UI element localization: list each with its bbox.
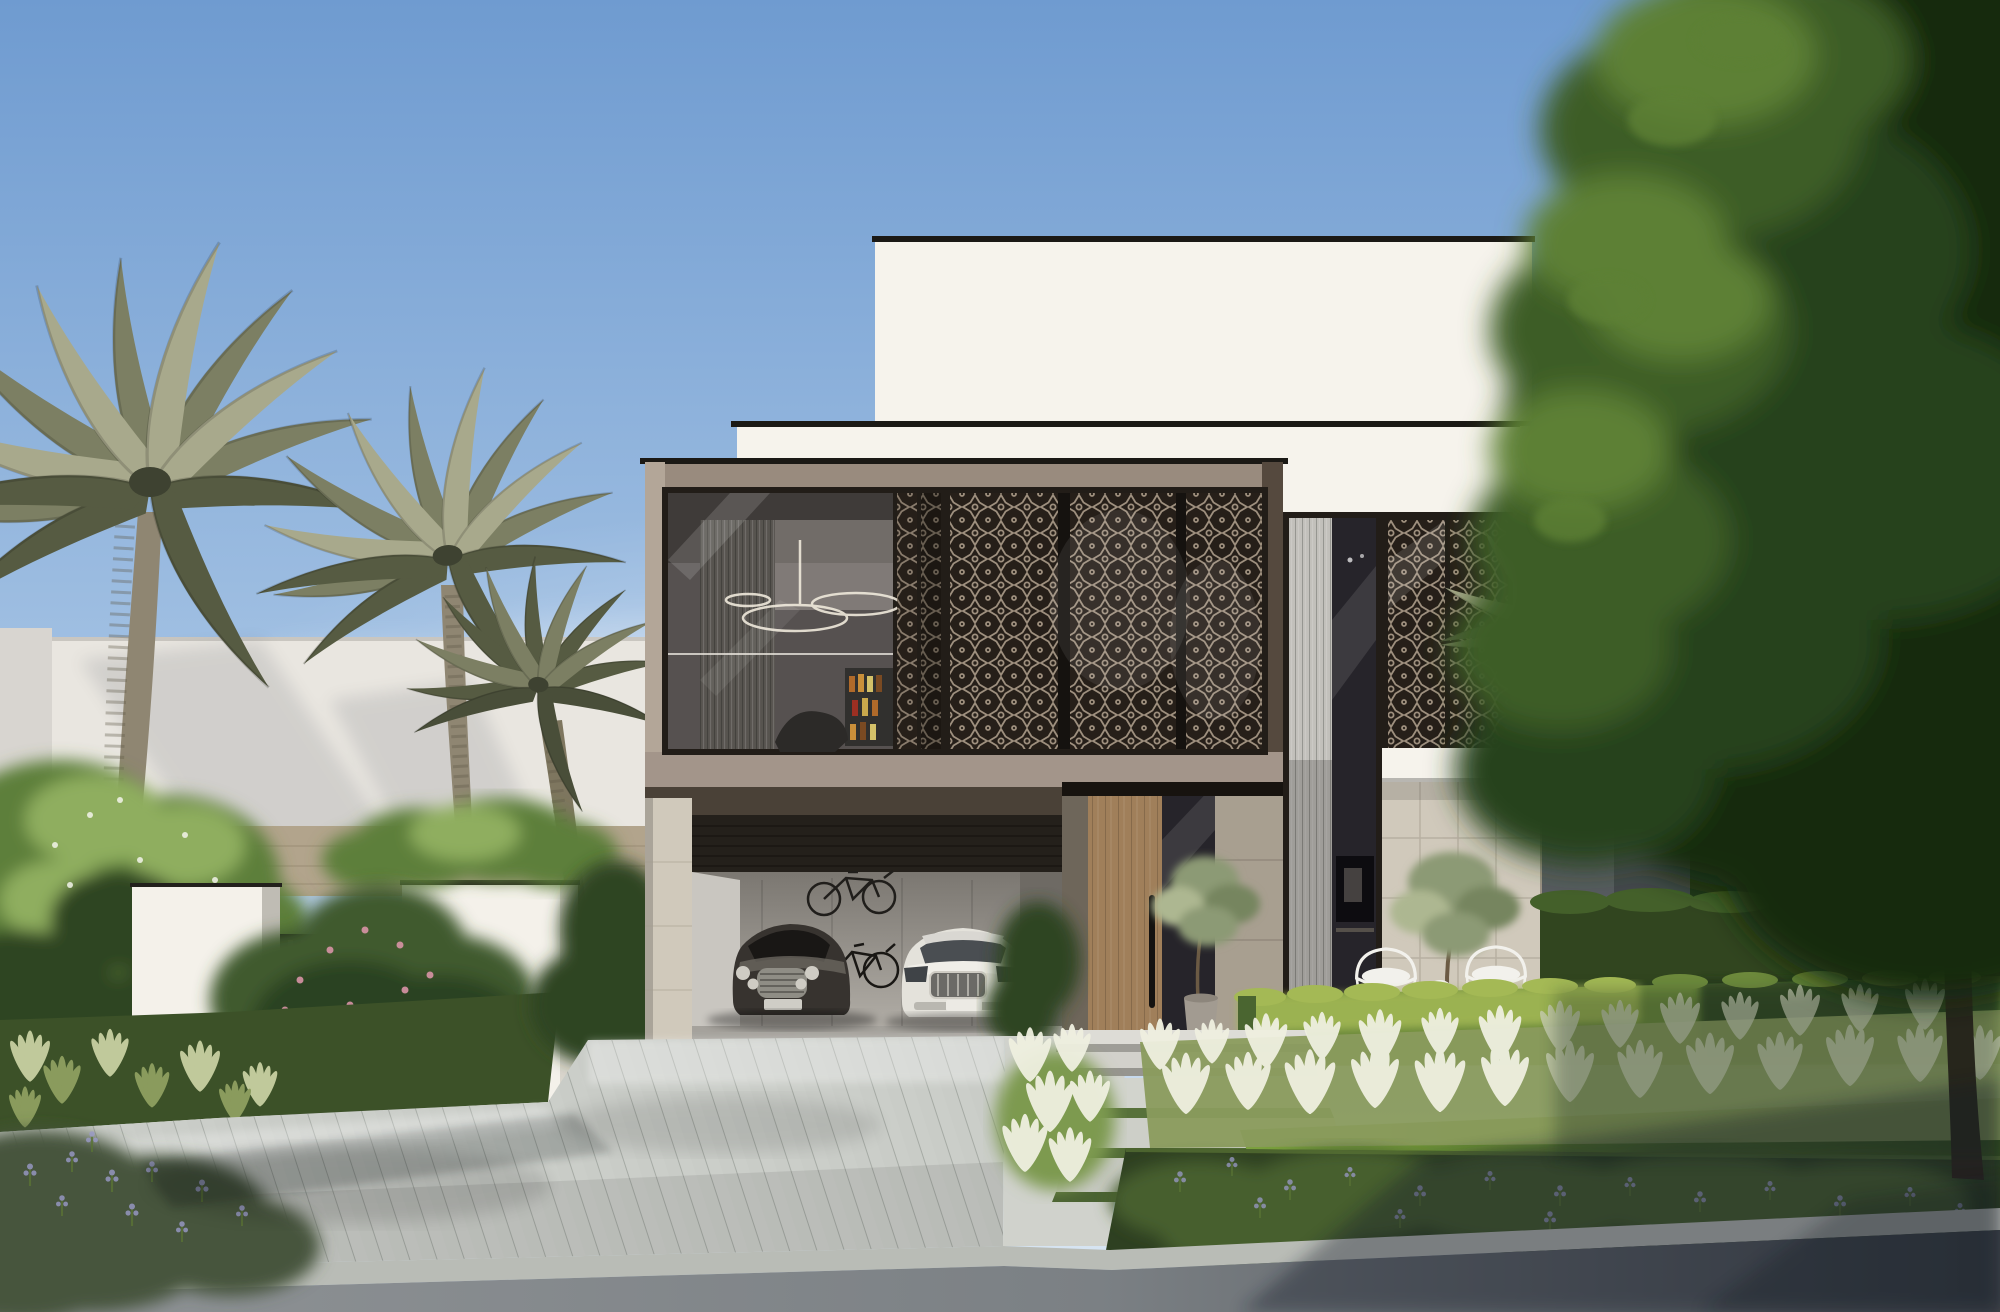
entrance-lintel-shadow	[1062, 782, 1283, 796]
bronze-box-sill	[645, 752, 1283, 787]
interior-console	[1336, 928, 1374, 932]
rendering-canvas	[0, 0, 2000, 1312]
coupe-headlight	[736, 966, 750, 980]
tv-art	[1344, 868, 1362, 902]
palm-shadow-on-driveway	[560, 1097, 880, 1153]
coupe-headlight	[796, 979, 807, 990]
sedan-headlight	[904, 966, 928, 982]
double-height-glazing-slot	[1283, 512, 1382, 1012]
coupe-headlight	[748, 979, 759, 990]
sedan-license-plate	[946, 1000, 982, 1011]
coupe-license-plate	[764, 999, 802, 1010]
pendant-light	[1360, 554, 1364, 558]
bronze-window-box	[640, 458, 1288, 787]
living-room-window	[668, 493, 900, 752]
canopy-shade-on-beds	[1555, 990, 2000, 1160]
screen-backlight	[1050, 510, 1190, 690]
roof-volume-coping	[872, 236, 1535, 242]
screen-backlight	[1170, 560, 1260, 720]
mid-volume-coping	[731, 421, 1562, 427]
mashrabiya-sliding-screens	[897, 493, 1262, 749]
gate-wall-left-coping	[130, 883, 282, 887]
villa-exterior-rendering	[0, 0, 2000, 1312]
coupe-shadow	[707, 1010, 877, 1030]
pendant-light	[1348, 558, 1353, 563]
sun-streak	[588, 1036, 1005, 1084]
coupe-headlight	[805, 966, 819, 980]
bronze-box-coping	[640, 458, 1288, 464]
palm-shadow-on-driveway	[150, 1147, 550, 1223]
roof-volume	[875, 241, 1532, 426]
